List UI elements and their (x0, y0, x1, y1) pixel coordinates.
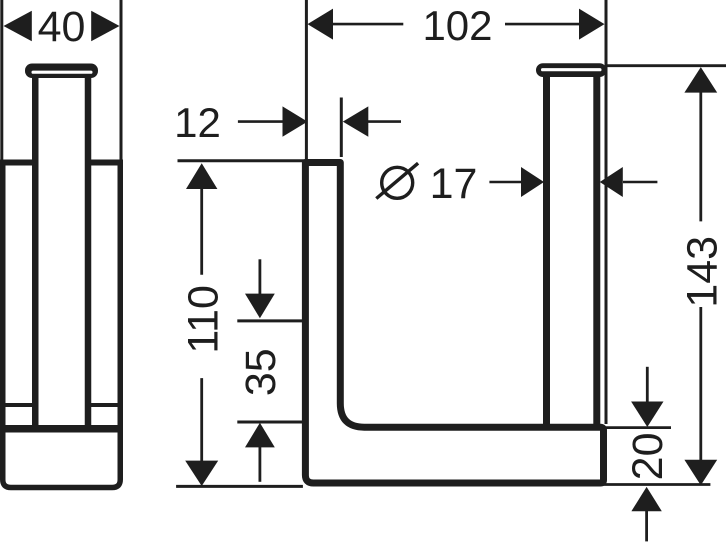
svg-text:17: 17 (430, 160, 478, 208)
svg-text:35: 35 (237, 348, 285, 396)
svg-text:12: 12 (174, 99, 221, 146)
svg-text:20: 20 (624, 432, 672, 480)
svg-text:143: 143 (679, 236, 727, 308)
svg-text:40: 40 (38, 3, 86, 51)
svg-text:102: 102 (422, 2, 492, 49)
svg-text:110: 110 (180, 285, 228, 354)
